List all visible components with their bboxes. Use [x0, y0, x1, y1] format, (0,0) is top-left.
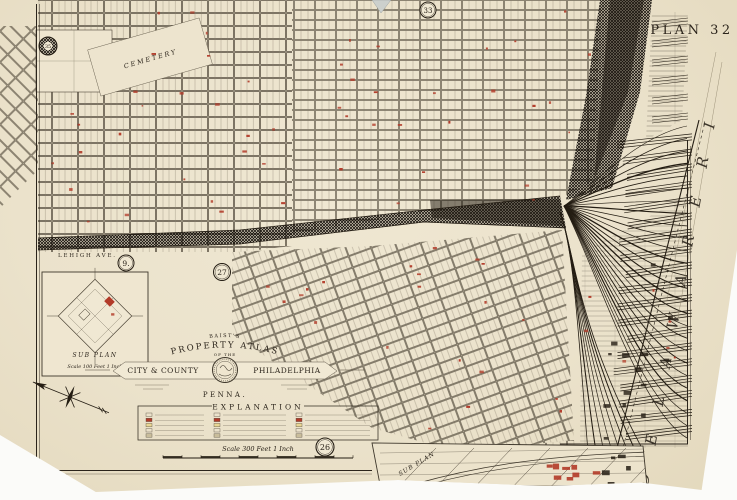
map-canvas: CEMETERY D E L A W A R E R I V E R — [0, 0, 737, 500]
banner-right-text: PHILADELPHIA — [253, 366, 320, 375]
plate-ref-label: 33 — [424, 7, 433, 15]
scale-caption: Scale 300 Feet 1 Inch — [222, 445, 294, 453]
banner-left-text: CITY & COUNTY — [127, 366, 199, 375]
sub-plan-inset: SUB PLAN Scale 100 Feet 1 Inch — [42, 268, 148, 376]
plate-ref-label: 26 — [320, 443, 330, 452]
plate-ref-label: 35 — [45, 44, 51, 50]
legend-title: EXPLANATION — [212, 403, 304, 412]
atlas-series-arc: BAIST'S — [209, 333, 241, 340]
plate-ref-label: 9. — [122, 259, 129, 268]
plate-ref-35: 35 — [39, 37, 57, 55]
legend-rows — [146, 413, 370, 437]
plate-ref-27: 27 — [214, 264, 231, 281]
atlas-scan: CEMETERY D E L A W A R E R I V E R — [0, 0, 737, 500]
compass-rose-icon — [28, 371, 113, 424]
plate-ref-9: 9. — [118, 255, 134, 271]
canal-label: CANAL — [449, 484, 480, 490]
map-sheet: CEMETERY D E L A W A R E R I V E R — [0, 0, 737, 500]
state-label: PENNA. — [203, 391, 247, 399]
lehigh-ave-label: LEHIGH AVE. — [58, 253, 117, 259]
plan-number-label: PLAN 32 — [650, 23, 733, 38]
sub-plan-scale: Scale 100 Feet 1 Inch — [67, 364, 122, 370]
plate-ref-26: 26 — [316, 438, 334, 456]
plate-ref-label: 27 — [217, 268, 227, 277]
legend-box: EXPLANATION Scale 300 Feet 1 Inch — [138, 401, 378, 458]
plate-ref-33: 33 — [420, 2, 436, 18]
sub-plan-panel: SUB PLAN CANAL — [372, 443, 664, 496]
sub-plan-caption: SUB PLAN — [72, 352, 117, 359]
of-the-label: OF THE — [214, 352, 236, 357]
